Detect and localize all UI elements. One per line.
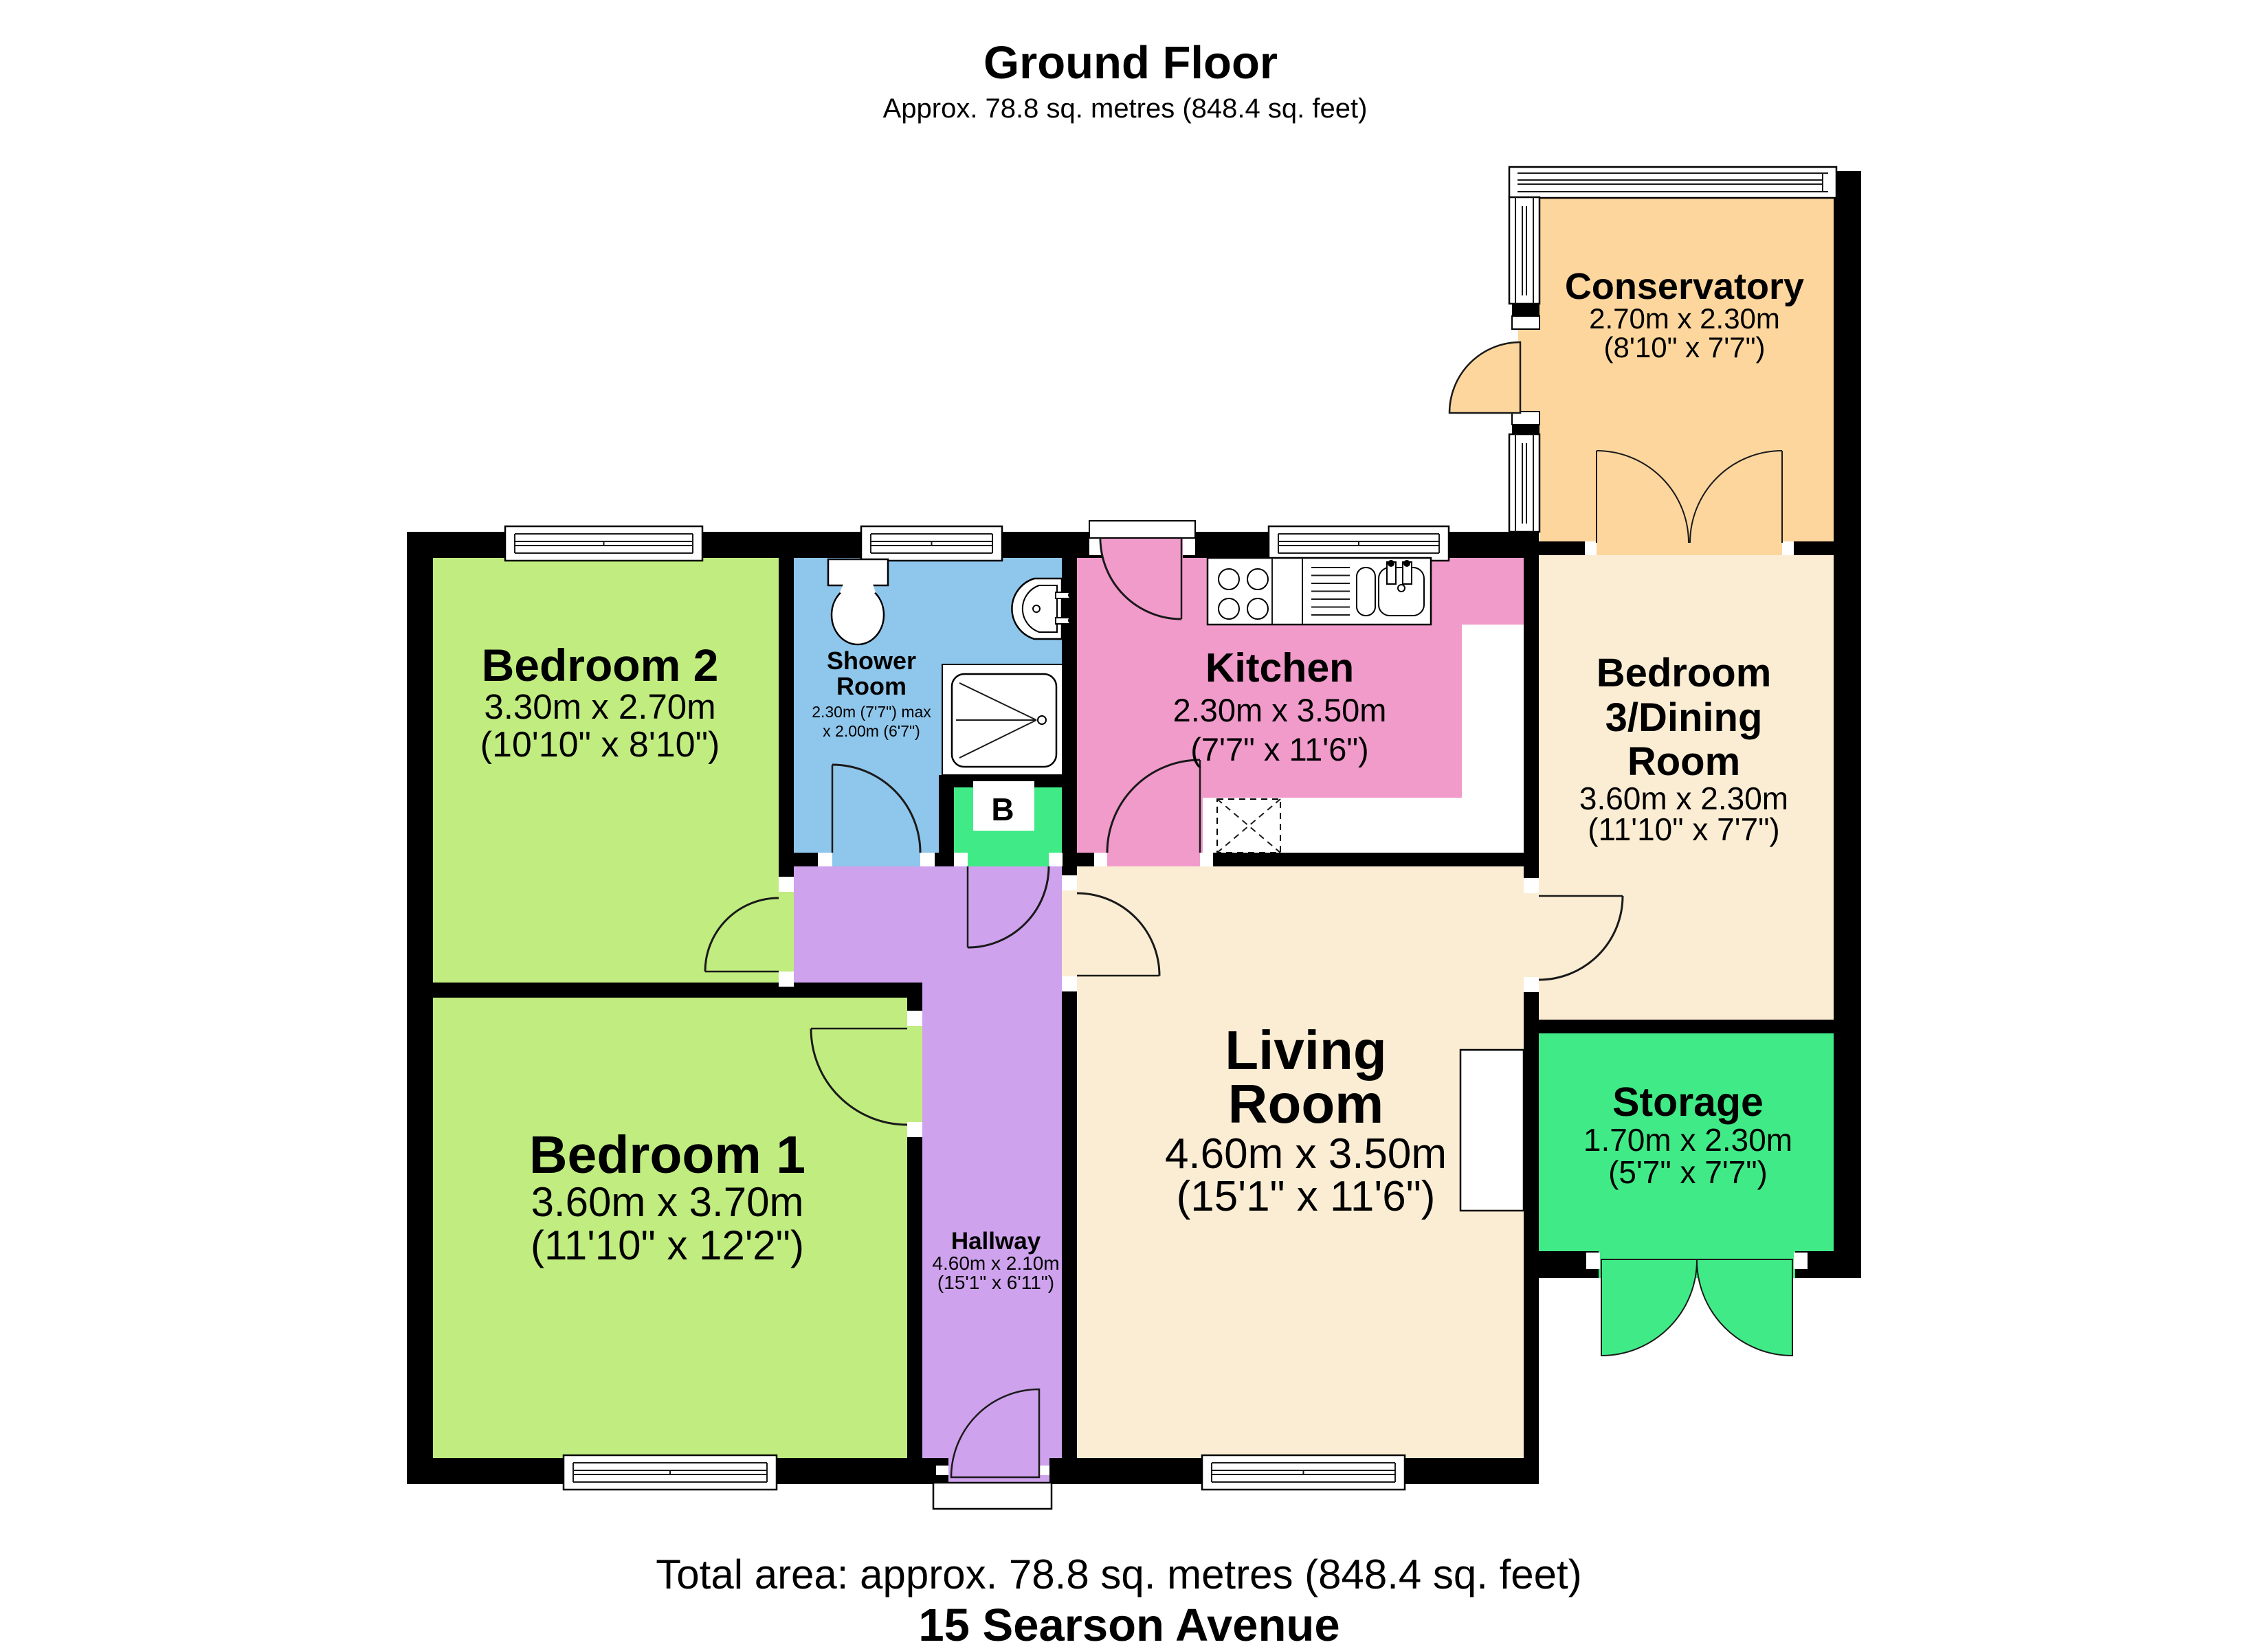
svg-text:(11'10" x 7'7"): (11'10" x 7'7") [1588, 811, 1780, 847]
svg-text:(15'1" x 11'6"): (15'1" x 11'6") [1177, 1173, 1436, 1220]
svg-text:x 2.00m (6'7"): x 2.00m (6'7") [823, 722, 920, 740]
svg-text:(5'7" x 7'7"): (5'7" x 7'7") [1608, 1154, 1768, 1190]
svg-text:3.60m x 3.70m: 3.60m x 3.70m [531, 1179, 804, 1225]
svg-text:(8'10" x 7'7"): (8'10" x 7'7") [1604, 331, 1766, 363]
svg-text:Total area: approx. 78.8 sq. m: Total area: approx. 78.8 sq. metres (848… [656, 1551, 1581, 1597]
svg-text:Bedroom: Bedroom [1597, 651, 1772, 695]
svg-text:Hallway: Hallway [951, 1228, 1041, 1255]
svg-text:(7'7" x 11'6"): (7'7" x 11'6") [1190, 731, 1368, 767]
svg-text:Room: Room [1627, 739, 1740, 784]
svg-text:Storage: Storage [1612, 1079, 1764, 1125]
svg-text:2.30m x 3.50m: 2.30m x 3.50m [1173, 692, 1387, 728]
svg-text:Living: Living [1225, 1020, 1387, 1081]
svg-text:Approx. 78.8 sq. metres (848.4: Approx. 78.8 sq. metres (848.4 sq. feet) [883, 93, 1368, 124]
svg-text:4.60m x 2.10m: 4.60m x 2.10m [932, 1253, 1059, 1274]
svg-text:Conservatory: Conservatory [1565, 266, 1804, 307]
svg-text:(11'10" x 12'2"): (11'10" x 12'2") [531, 1222, 804, 1268]
svg-text:Ground Floor: Ground Floor [983, 37, 1278, 89]
svg-text:Bedroom 1: Bedroom 1 [529, 1125, 805, 1185]
svg-text:Bedroom 2: Bedroom 2 [482, 640, 719, 691]
svg-text:Room: Room [1228, 1073, 1384, 1134]
svg-text:2.70m x 2.30m: 2.70m x 2.30m [1589, 302, 1780, 335]
svg-text:15 Searson Avenue: 15 Searson Avenue [918, 1600, 1339, 1649]
svg-text:Shower: Shower [827, 647, 916, 675]
svg-text:(15'1" x 6'11"): (15'1" x 6'11") [937, 1272, 1054, 1293]
svg-text:4.60m x 3.50m: 4.60m x 3.50m [1165, 1130, 1447, 1178]
svg-text:Room: Room [836, 672, 907, 700]
svg-text:2.30m (7'7") max: 2.30m (7'7") max [812, 703, 931, 721]
svg-text:3/Dining: 3/Dining [1605, 695, 1763, 740]
svg-text:1.70m x 2.30m: 1.70m x 2.30m [1583, 1122, 1792, 1158]
svg-text:(10'10" x 8'10"): (10'10" x 8'10") [480, 725, 720, 765]
svg-text:B: B [991, 792, 1014, 827]
svg-text:3.30m x 2.70m: 3.30m x 2.70m [484, 687, 715, 726]
svg-text:Kitchen: Kitchen [1205, 645, 1354, 691]
